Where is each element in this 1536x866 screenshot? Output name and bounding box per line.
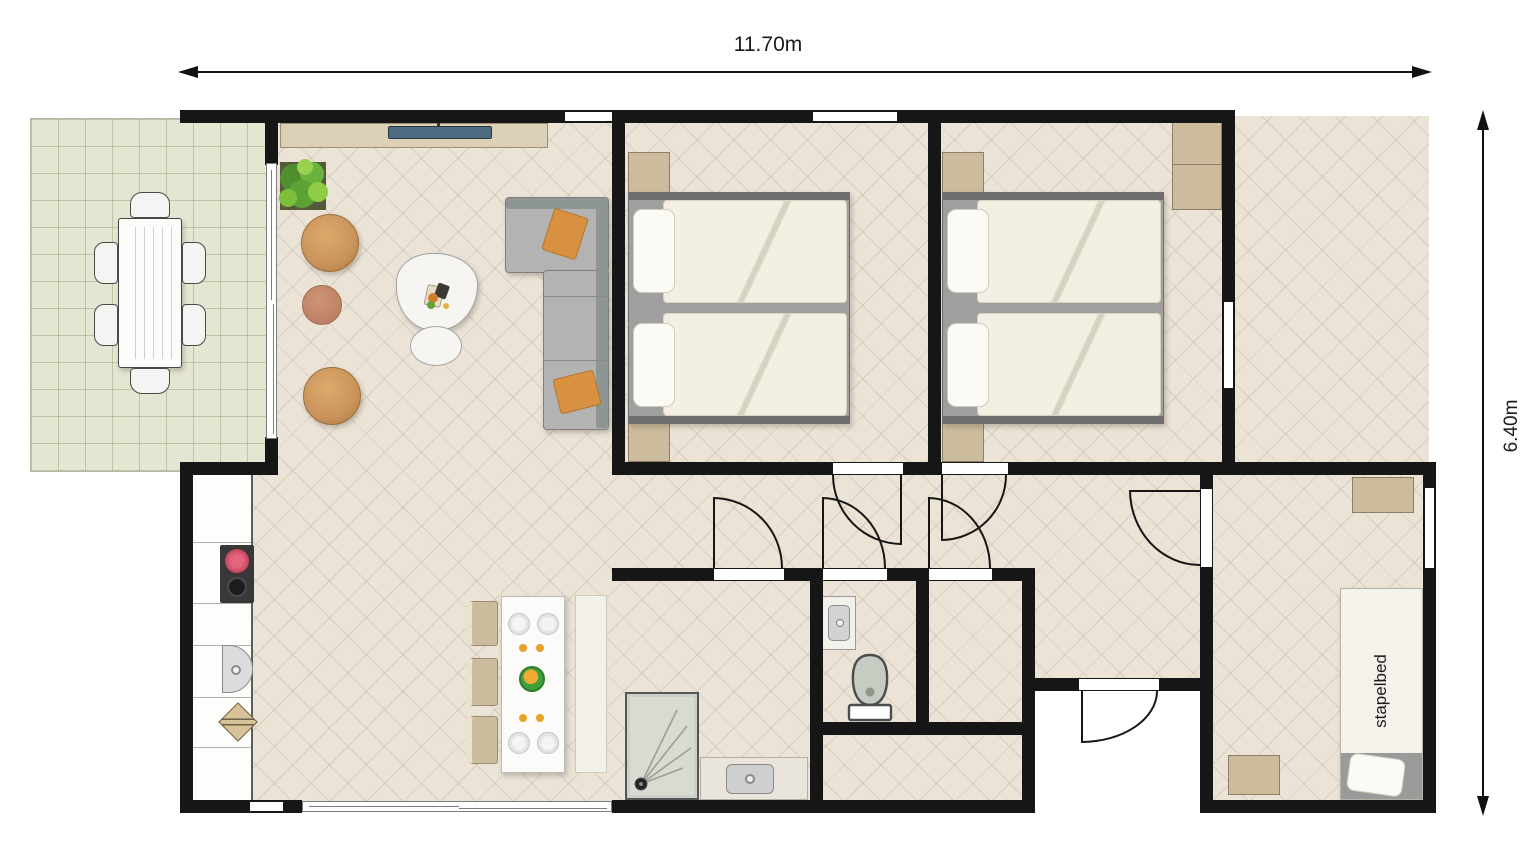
dining-chair-1 xyxy=(466,601,498,646)
width-dimension-label: 11.70m xyxy=(688,33,848,57)
bunk-bed-label: stapelbed xyxy=(1371,636,1391,746)
door-panel-toilet xyxy=(822,568,888,581)
snack-tray xyxy=(422,282,456,314)
dining-bench xyxy=(575,595,607,773)
stove xyxy=(220,545,254,603)
bunkroom-cabinet-top xyxy=(1352,477,1414,513)
dining-chair-2 xyxy=(466,658,498,706)
basin-faucet xyxy=(745,774,755,784)
plate-3 xyxy=(508,732,530,754)
bed2-base xyxy=(942,192,1164,424)
bed2-pillow-bottom xyxy=(947,323,989,407)
shower-spray xyxy=(627,694,697,798)
kitchen-counter xyxy=(193,475,253,800)
bed2-nightstand-bottom xyxy=(942,420,984,462)
fruit-bowl xyxy=(519,666,545,692)
bed1-pillow-top xyxy=(633,209,675,293)
bed2-duvet-bottom xyxy=(977,313,1161,416)
pouf-small xyxy=(302,285,342,325)
bed1-nightstand-bottom xyxy=(628,420,670,462)
dining-chair-3 xyxy=(466,716,498,764)
terrace-chair-top xyxy=(130,192,170,218)
toilet xyxy=(846,652,894,724)
bed1-duvet-bottom xyxy=(663,313,847,416)
shower xyxy=(625,692,699,800)
bed2-wardrobe xyxy=(1172,118,1222,210)
wall-bottom-a xyxy=(180,800,250,813)
floor-plan: stapelbed xyxy=(0,0,1536,866)
wall-bath-toilet xyxy=(810,568,823,813)
terrace-chair-right-1 xyxy=(182,242,206,284)
wall-bedrooms-bottom xyxy=(612,462,1235,475)
door-panel-bed1 xyxy=(832,462,904,475)
sofa-seam-1 xyxy=(544,296,608,297)
terrace-chair-left-1 xyxy=(94,242,118,284)
toilet-sink-basin xyxy=(828,605,850,641)
potted-plant xyxy=(272,150,334,218)
window-living-top xyxy=(565,110,612,123)
window-bed2-right xyxy=(1222,302,1235,388)
height-dimension-label: 6.40m xyxy=(1501,386,1523,466)
plate-4 xyxy=(537,732,559,754)
sliding-door-garden xyxy=(302,801,612,812)
width-dimension-arrow xyxy=(176,62,1434,82)
terrace-chair-right-2 xyxy=(182,304,206,346)
wardrobe-divider xyxy=(1173,164,1221,165)
orange-1 xyxy=(519,644,527,652)
wall-right-upper xyxy=(1222,110,1235,475)
table-slats xyxy=(127,227,173,359)
pouf-large-2 xyxy=(303,367,361,425)
coffee-side-table xyxy=(410,326,462,366)
orange-2 xyxy=(536,644,544,652)
wall-toilet-bottom xyxy=(810,722,1035,735)
plate-1 xyxy=(508,613,530,635)
door-panel-bunkroom xyxy=(1200,488,1213,568)
wall-toilet-storage xyxy=(916,568,929,735)
wall-top xyxy=(180,110,1235,123)
wall-bunkroom-top xyxy=(1200,462,1436,475)
wall-left xyxy=(180,462,193,813)
height-dimension-arrow xyxy=(1473,108,1493,818)
bed1-rail-top xyxy=(629,193,849,200)
terrace-chair-bottom xyxy=(130,368,170,394)
bed1-pillow-bottom xyxy=(633,323,675,407)
bed2-nightstand-top xyxy=(942,152,984,194)
door-panel-bathroom xyxy=(713,568,785,581)
sofa-seam-2 xyxy=(544,360,608,361)
window-bunkroom-right xyxy=(1423,488,1436,568)
bed1-base xyxy=(628,192,850,424)
sink-faucet xyxy=(231,665,241,675)
pouf-large-1 xyxy=(301,214,359,272)
wall-bottom-b xyxy=(283,800,302,813)
wall-living-left-upper xyxy=(265,110,278,165)
wall-living-bed1 xyxy=(612,110,625,475)
bed2-rail-bottom xyxy=(943,416,1163,423)
burner-black xyxy=(227,577,247,597)
bed1-nightstand-top xyxy=(628,152,670,194)
bed2-rail-top xyxy=(943,193,1163,200)
wall-storage-right xyxy=(1022,568,1035,813)
bed2-pillow-top xyxy=(947,209,989,293)
bunkroom-cabinet-bottom xyxy=(1228,755,1280,795)
wall-bottom-c xyxy=(612,800,1035,813)
burner-red xyxy=(225,549,249,573)
window-kitchen-bottom xyxy=(250,800,283,813)
terrace-dining-table xyxy=(118,218,182,368)
bed2-duvet-top xyxy=(977,200,1161,303)
tv-screen xyxy=(388,126,492,139)
window-bed1-top xyxy=(813,110,897,123)
wall-bed1-bed2 xyxy=(928,110,941,475)
orange-4 xyxy=(536,714,544,722)
wall-bottom-d xyxy=(1200,800,1436,813)
door-panel-entrance xyxy=(1078,678,1160,691)
bath-basin xyxy=(726,764,774,794)
terrace-chair-left-2 xyxy=(94,304,118,346)
plate-2 xyxy=(537,613,559,635)
toilet-sink-unit xyxy=(822,596,856,650)
wall-terrace-bottom xyxy=(180,462,278,475)
bed1-duvet-top xyxy=(663,200,847,303)
door-panel-bed2 xyxy=(941,462,1009,475)
door-panel-storage xyxy=(928,568,993,581)
bunk-pillow xyxy=(1346,752,1407,797)
sliding-door-terrace xyxy=(266,163,277,439)
orange-3 xyxy=(519,714,527,722)
bed1-rail-bottom xyxy=(629,416,849,423)
